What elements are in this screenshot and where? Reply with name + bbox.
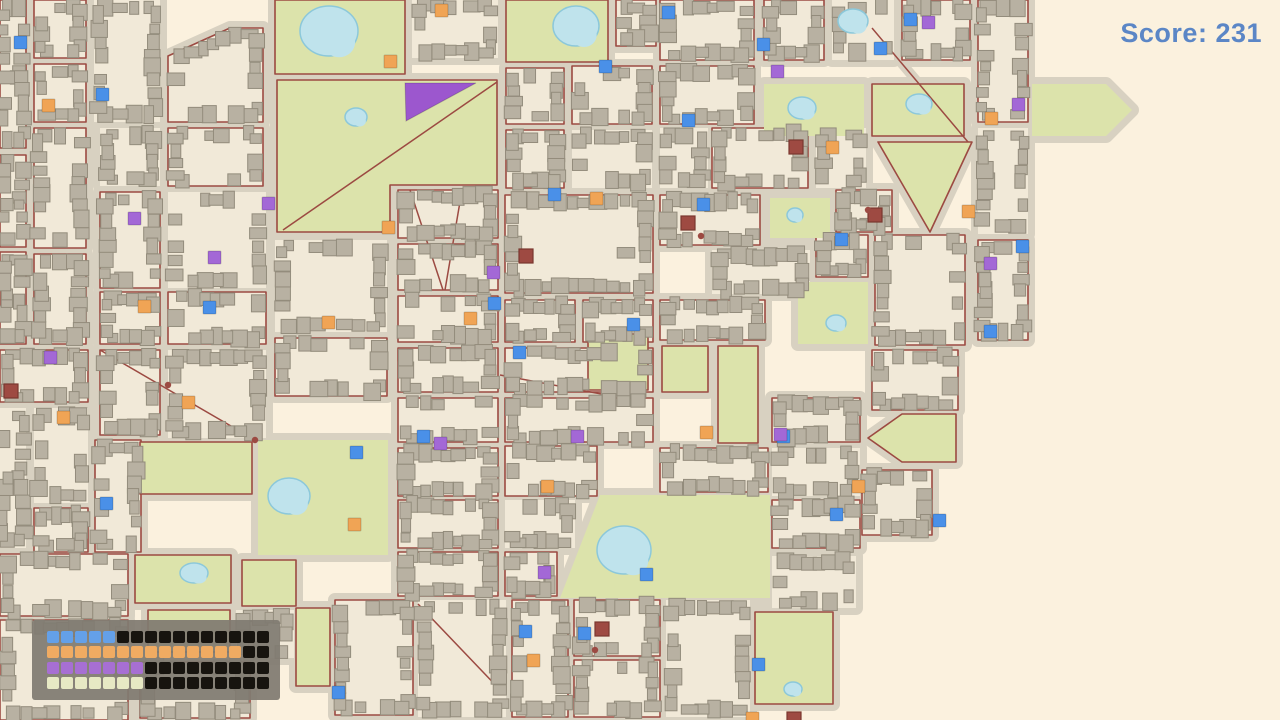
- progress-cell: [89, 646, 101, 658]
- progress-cell: [75, 662, 87, 674]
- progress-cell: [47, 662, 59, 674]
- progress-cell: [229, 662, 241, 674]
- progress-cell: [47, 646, 59, 658]
- progress-cell: [187, 662, 199, 674]
- progress-cell: [215, 677, 227, 689]
- progress-cell: [61, 677, 73, 689]
- progress-cell: [243, 646, 255, 658]
- progress-row-blue: [47, 631, 265, 643]
- progress-cell: [229, 646, 241, 658]
- progress-cell: [229, 631, 241, 643]
- progress-cell: [187, 631, 199, 643]
- progress-cell: [61, 631, 73, 643]
- progress-cell: [89, 677, 101, 689]
- progress-panel: [32, 620, 280, 700]
- progress-cell: [89, 631, 101, 643]
- progress-row-purple: [47, 662, 265, 674]
- progress-cell: [173, 631, 185, 643]
- progress-cell: [201, 631, 213, 643]
- progress-cell: [257, 646, 269, 658]
- progress-cell: [215, 662, 227, 674]
- progress-cell: [257, 662, 269, 674]
- progress-cell: [201, 662, 213, 674]
- progress-cell: [61, 646, 73, 658]
- progress-cell: [47, 631, 59, 643]
- progress-cell: [103, 662, 115, 674]
- progress-cell: [159, 646, 171, 658]
- progress-cell: [61, 662, 73, 674]
- progress-cell: [117, 646, 129, 658]
- progress-row-cream: [47, 677, 265, 689]
- progress-cell: [159, 662, 171, 674]
- progress-cell: [103, 631, 115, 643]
- progress-cell: [159, 631, 171, 643]
- progress-cell: [243, 631, 255, 643]
- progress-cell: [131, 677, 143, 689]
- progress-cell: [201, 677, 213, 689]
- progress-cell: [145, 662, 157, 674]
- progress-cell: [117, 662, 129, 674]
- progress-cell: [131, 646, 143, 658]
- progress-cell: [145, 677, 157, 689]
- progress-cell: [187, 677, 199, 689]
- progress-row-orange: [47, 646, 265, 658]
- progress-cell: [117, 677, 129, 689]
- progress-cell: [257, 631, 269, 643]
- progress-cell: [257, 677, 269, 689]
- score-label: Score: 231: [1120, 18, 1262, 49]
- progress-cell: [145, 646, 157, 658]
- progress-cell: [89, 662, 101, 674]
- progress-cell: [173, 646, 185, 658]
- progress-cell: [131, 631, 143, 643]
- city-map-canvas[interactable]: [0, 0, 1280, 720]
- progress-cell: [47, 677, 59, 689]
- progress-cell: [173, 662, 185, 674]
- game-stage: Score: 231: [0, 0, 1280, 720]
- progress-cell: [75, 677, 87, 689]
- progress-cell: [215, 646, 227, 658]
- progress-cell: [75, 631, 87, 643]
- progress-cell: [75, 646, 87, 658]
- progress-cell: [187, 646, 199, 658]
- progress-cell: [229, 677, 241, 689]
- progress-cell: [103, 677, 115, 689]
- progress-cell: [131, 662, 143, 674]
- progress-cell: [173, 677, 185, 689]
- progress-cell: [145, 631, 157, 643]
- progress-cell: [243, 677, 255, 689]
- progress-cell: [159, 677, 171, 689]
- progress-cell: [215, 631, 227, 643]
- progress-cell: [201, 646, 213, 658]
- progress-cell: [103, 646, 115, 658]
- progress-cell: [243, 662, 255, 674]
- progress-cell: [117, 631, 129, 643]
